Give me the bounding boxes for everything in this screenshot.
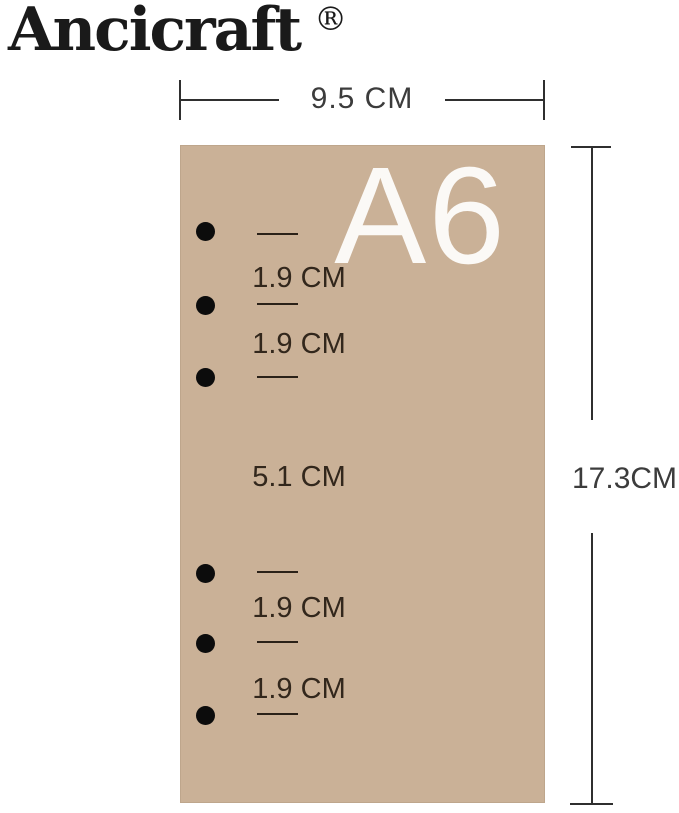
hole-5-level-dash <box>257 641 298 643</box>
binder-hole-4 <box>196 564 215 583</box>
paper-size-label: A6 <box>334 147 507 285</box>
hole-1-level-dash <box>257 233 298 235</box>
binder-hole-2 <box>196 296 215 315</box>
binder-hole-6 <box>196 706 215 725</box>
hole-3-level-dash <box>257 376 298 378</box>
width-dim-right-tick <box>543 80 545 120</box>
height-dimension: 17.3CM <box>570 146 613 805</box>
hole-6-level-dash <box>257 713 298 715</box>
binder-hole-3 <box>196 368 215 387</box>
middle-gap-label: 5.1 CM <box>250 460 348 494</box>
width-dimension: 9.5 CM <box>179 80 545 120</box>
height-dim-upper-line <box>591 148 593 420</box>
hole-gap-label-3: 1.9 CM <box>250 591 348 625</box>
hole-gap-label-2: 1.9 CM <box>250 327 348 361</box>
brand-logo: Ancicraft ® <box>8 0 347 60</box>
product-dimension-diagram: Ancicraft ® 9.5 CM 17.3CM A6 1.9 CM 1.9 … <box>0 0 679 813</box>
height-dim-bottom-tick <box>570 803 613 805</box>
hole-gap-label-4: 1.9 CM <box>250 672 348 706</box>
registered-trademark-icon: ® <box>314 2 347 35</box>
width-dim-right-line <box>445 99 544 101</box>
binder-hole-1 <box>196 222 215 241</box>
paper-sheet: A6 1.9 CM 1.9 CM 5.1 CM 1.9 CM 1.9 CM <box>180 145 545 803</box>
binder-hole-5 <box>196 634 215 653</box>
height-dimension-label: 17.3CM <box>572 462 677 496</box>
hole-4-level-dash <box>257 571 298 573</box>
height-dim-lower-line <box>591 533 593 803</box>
brand-name: Ancicraft <box>8 0 300 60</box>
hole-2-level-dash <box>257 303 298 305</box>
hole-gap-label-1: 1.9 CM <box>250 261 348 295</box>
